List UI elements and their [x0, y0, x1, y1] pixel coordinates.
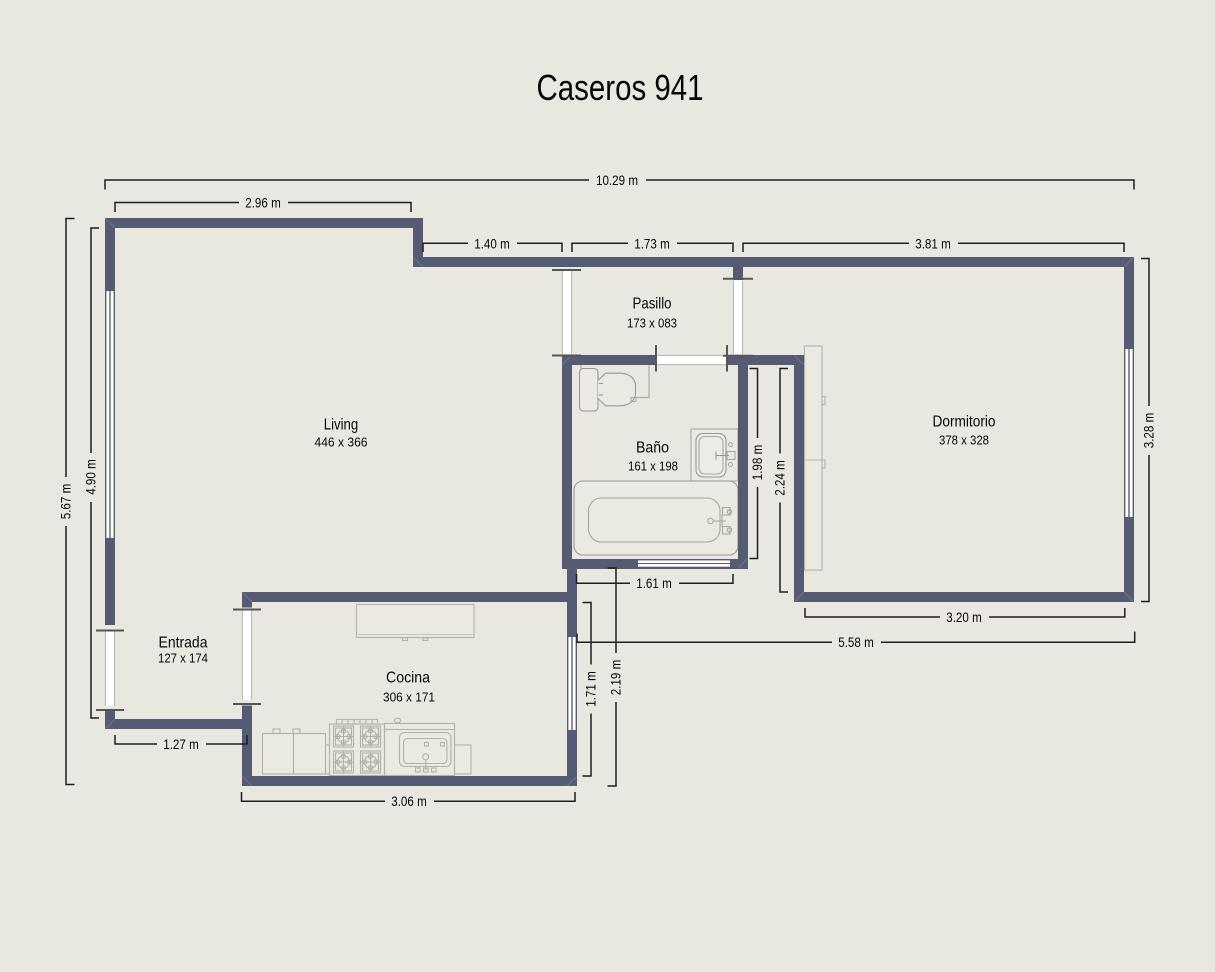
- svg-text:3.20 m: 3.20 m: [946, 610, 982, 625]
- svg-text:Living: Living: [324, 417, 359, 434]
- svg-text:Dormitorio: Dormitorio: [933, 414, 996, 431]
- svg-text:2.24 m: 2.24 m: [773, 460, 788, 496]
- svg-text:173 x 083: 173 x 083: [627, 316, 677, 331]
- svg-text:161 x 198: 161 x 198: [628, 459, 678, 474]
- svg-text:Cocina: Cocina: [386, 670, 430, 687]
- svg-text:Entrada: Entrada: [159, 635, 208, 652]
- svg-text:378 x 328: 378 x 328: [939, 433, 989, 448]
- svg-text:1.98 m: 1.98 m: [750, 445, 765, 481]
- svg-text:2.19 m: 2.19 m: [609, 660, 624, 696]
- svg-text:5.67 m: 5.67 m: [59, 484, 74, 520]
- svg-text:3.06 m: 3.06 m: [391, 794, 427, 809]
- svg-text:10.29 m: 10.29 m: [596, 173, 638, 188]
- svg-text:127 x 174: 127 x 174: [158, 651, 208, 666]
- svg-text:446 x 366: 446 x 366: [315, 435, 368, 450]
- svg-text:1.71 m: 1.71 m: [584, 671, 599, 707]
- svg-text:3.81 m: 3.81 m: [915, 236, 951, 251]
- svg-text:3.28 m: 3.28 m: [1142, 413, 1157, 449]
- svg-text:2.96 m: 2.96 m: [245, 196, 281, 211]
- svg-text:1.40 m: 1.40 m: [474, 236, 510, 251]
- svg-text:1.61 m: 1.61 m: [636, 576, 672, 591]
- svg-text:306 x 171: 306 x 171: [383, 690, 435, 705]
- svg-text:4.90 m: 4.90 m: [84, 459, 99, 495]
- svg-text:1.73 m: 1.73 m: [634, 236, 670, 251]
- svg-text:5.58 m: 5.58 m: [838, 635, 874, 650]
- svg-text:Pasillo: Pasillo: [633, 296, 672, 313]
- svg-text:Caseros 941: Caseros 941: [537, 67, 704, 108]
- svg-text:Baño: Baño: [636, 440, 669, 457]
- svg-text:1.27 m: 1.27 m: [163, 737, 199, 752]
